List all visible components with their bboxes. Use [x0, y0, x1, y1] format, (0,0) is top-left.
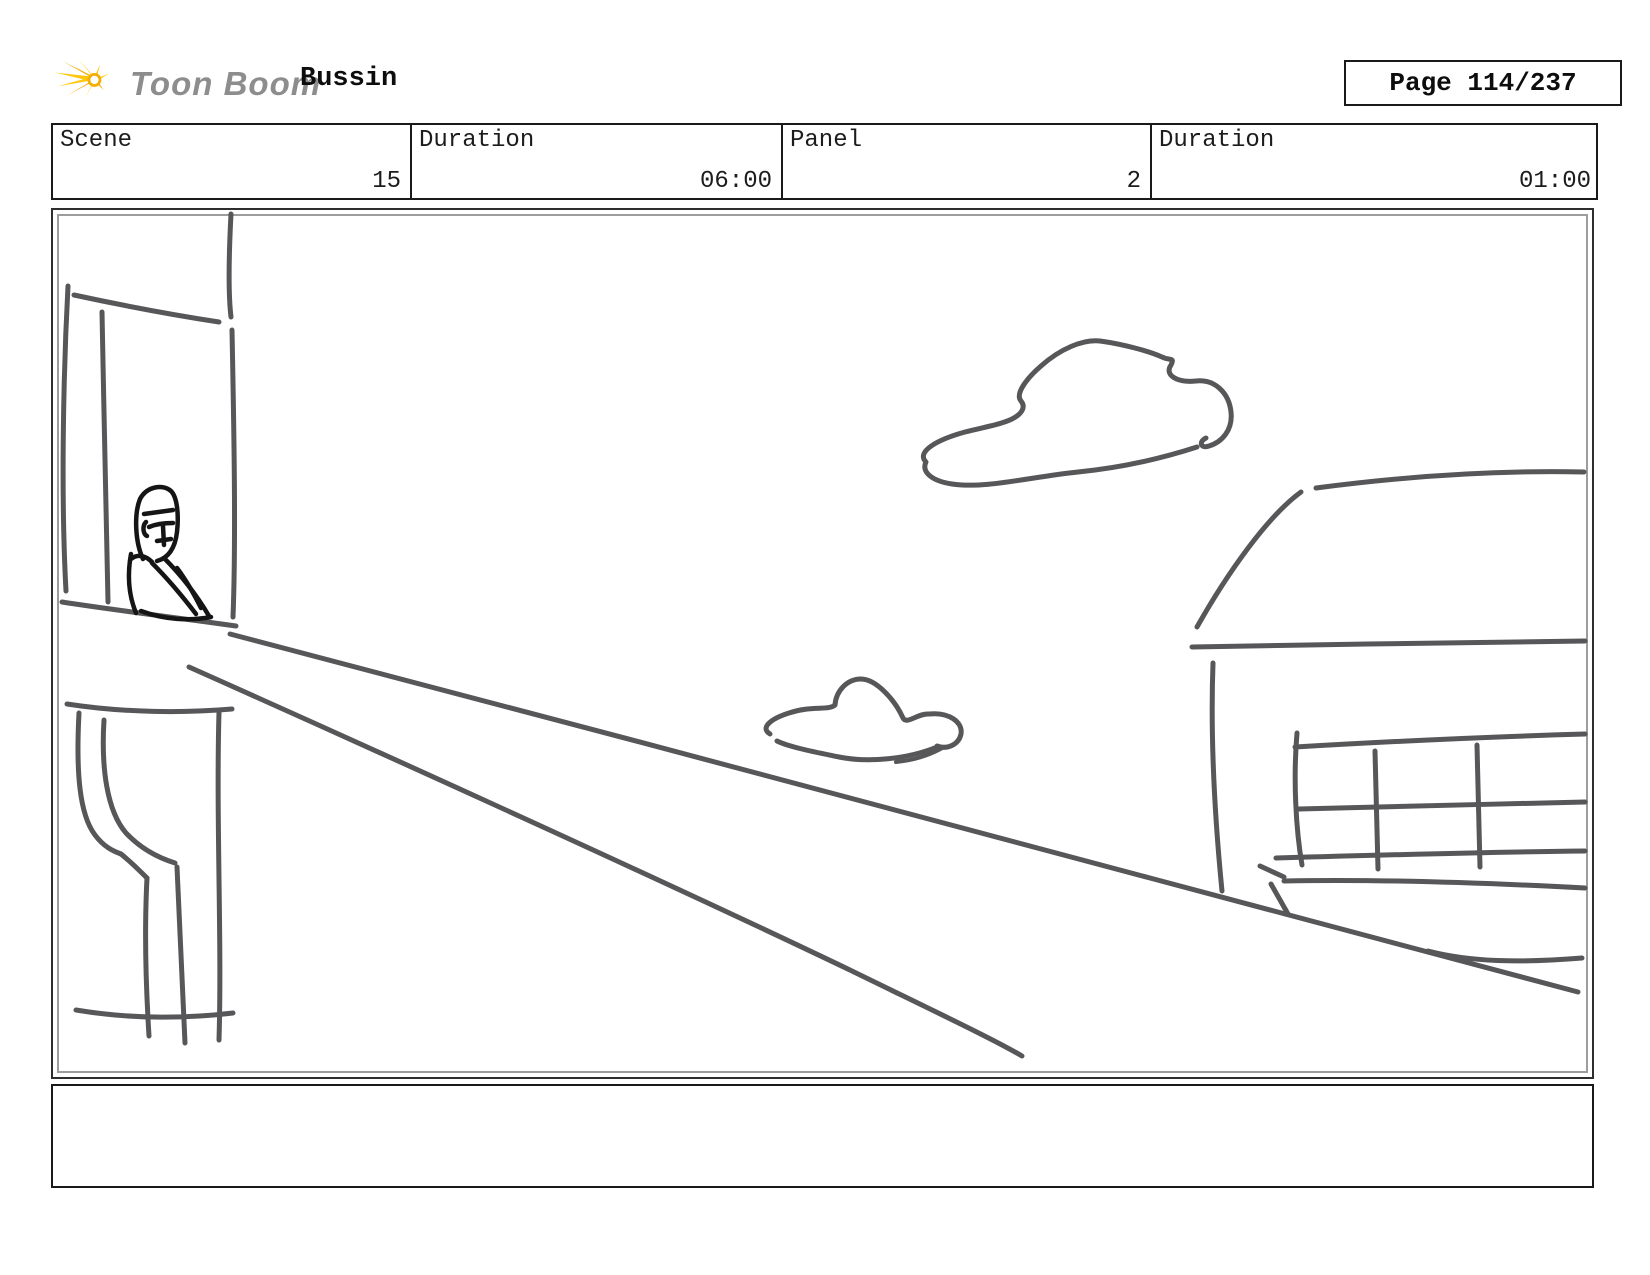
panel-duration-label: Duration: [1159, 127, 1274, 154]
scene-value: 15: [372, 168, 401, 195]
panel-duration-value: 01:00: [1519, 168, 1591, 195]
scene-label: Scene: [60, 127, 132, 154]
panel-meta-table: Scene 15 Duration 06:00 Panel 2 Duration…: [51, 123, 1598, 200]
caption-box: [51, 1084, 1594, 1188]
meta-cell-panel-duration: Duration 01:00: [1152, 125, 1600, 198]
storyboard-panel-frame: [51, 208, 1594, 1079]
meta-cell-panel: Panel 2: [783, 125, 1152, 198]
toonboom-logo: Toon Boom: [52, 48, 321, 110]
panel-value: 2: [1127, 168, 1141, 195]
scene-duration-value: 06:00: [700, 168, 772, 195]
meta-cell-scene: Scene 15: [53, 125, 412, 198]
starburst-icon: [52, 48, 124, 110]
project-title: Bussin: [300, 64, 397, 94]
panel-label: Panel: [790, 127, 862, 154]
storyboard-panel-inner-frame: [57, 214, 1588, 1073]
storyboard-page: Toon Boom Bussin Page 114/237 Scene 15 D…: [0, 0, 1650, 1275]
page-number-label: Page 114/237: [1389, 68, 1576, 98]
scene-duration-label: Duration: [419, 127, 534, 154]
logo-text: Toon Boom: [130, 65, 321, 103]
page-number-box: Page 114/237: [1344, 60, 1622, 106]
meta-cell-scene-duration: Duration 06:00: [412, 125, 783, 198]
